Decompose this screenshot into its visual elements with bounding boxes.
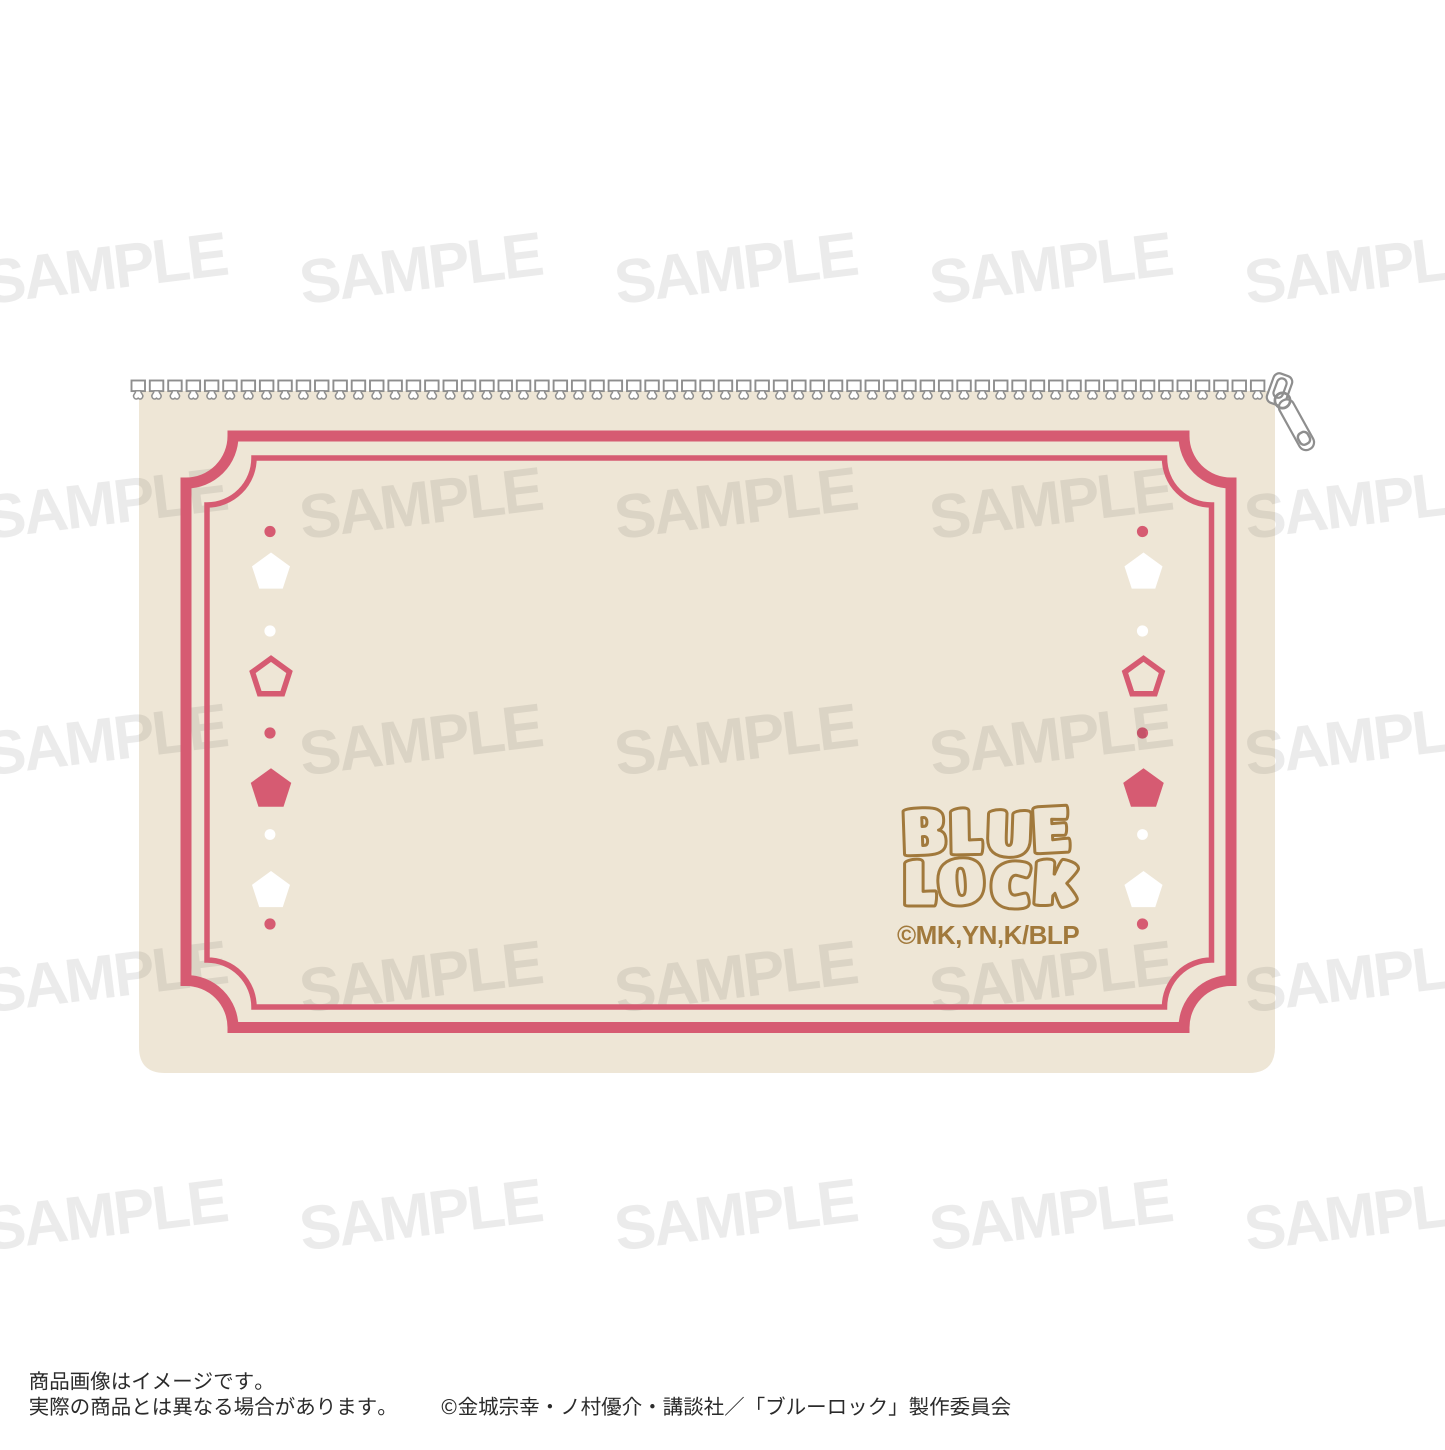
svg-text:©MK,YN,K/BLP: ©MK,YN,K/BLP (897, 920, 1079, 950)
